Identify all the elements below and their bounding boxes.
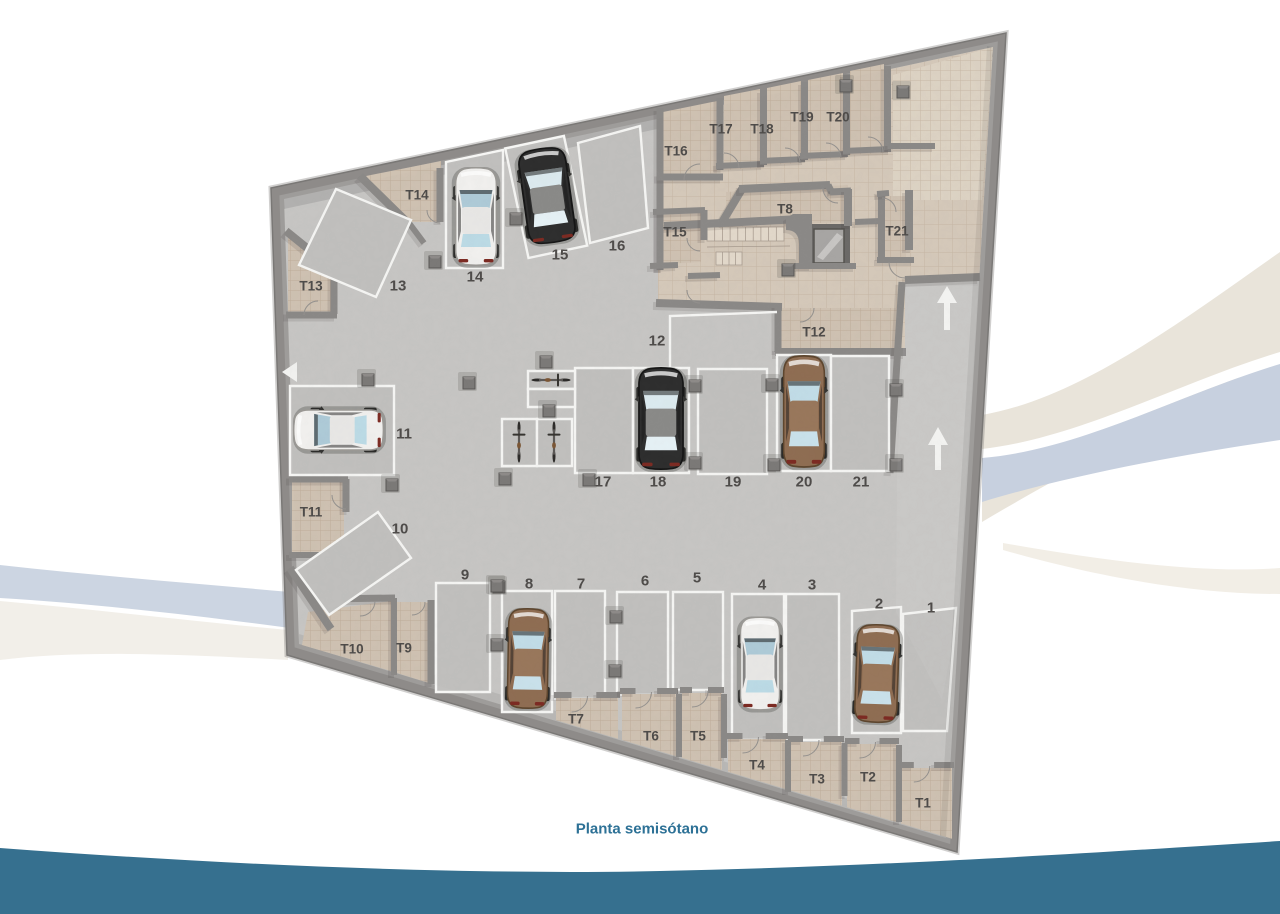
svg-text:Planta semisótano: Planta semisótano: [576, 821, 709, 838]
